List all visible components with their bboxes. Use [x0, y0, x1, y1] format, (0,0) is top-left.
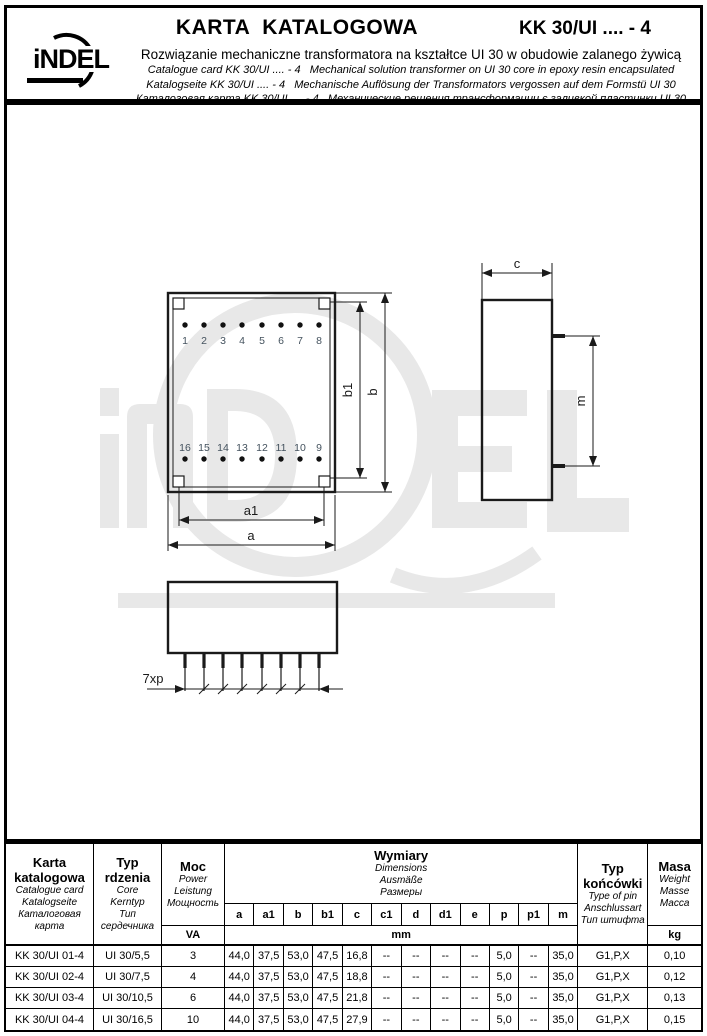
table-cell: 44,0 — [225, 967, 254, 988]
dim-letter: d1 — [439, 909, 452, 921]
table-cell: G1,P,X — [578, 967, 648, 988]
table-cell: 5,0 — [490, 988, 519, 1009]
header-line: Weight — [659, 874, 690, 886]
table-cell: G1,P,X — [578, 988, 648, 1009]
header-line: Typ — [116, 855, 138, 870]
table-cell: 44,0 — [225, 988, 254, 1009]
header-line: Typ — [602, 861, 624, 876]
table-cell: -- — [461, 967, 490, 988]
dim-subheader-m: m — [549, 904, 578, 926]
page-title-code: KK 30/UI .... - 4 — [495, 18, 675, 40]
pin-number: 8 — [316, 335, 322, 347]
header-line: Catalogue card — [16, 885, 84, 897]
header-line: Masa — [658, 859, 691, 874]
table-cell: KK 30/UI 03-4 — [6, 988, 94, 1009]
header-line: Dimensions — [375, 863, 427, 875]
table-cell: 53,0 — [284, 1009, 313, 1030]
pin-number: 15 — [198, 442, 210, 454]
header-line: Тип — [119, 909, 136, 921]
header-line: Type of pin — [588, 891, 637, 903]
technical-drawing: 1 2 3 4 5 6 7 8 16 15 14 13 12 11 10 9 b… — [7, 105, 700, 839]
header-line: Kerntyp — [110, 897, 144, 909]
table-cell: 47,5 — [313, 988, 342, 1009]
table-cell: 47,5 — [313, 946, 342, 967]
table-cell: 21,8 — [343, 988, 372, 1009]
table-cell: 6 — [162, 988, 225, 1009]
dim-label-a: a — [247, 528, 255, 543]
dim-letter: b — [295, 909, 302, 921]
table-cell: KK 30/UI 01-4 — [6, 946, 94, 967]
table-cell: -- — [431, 946, 460, 967]
pin-number: 16 — [179, 442, 191, 454]
unit-mm: mm — [225, 926, 578, 946]
header-box: iNDEL KARTA KATALOGOWA KK 30/UI .... - 4… — [4, 5, 703, 102]
table-cell: 37,5 — [254, 967, 283, 988]
table-cell: 0,13 — [648, 988, 701, 1009]
header-line: Leistung — [174, 886, 212, 898]
table-cell: 0,12 — [648, 967, 701, 988]
table-cell: 53,0 — [284, 946, 313, 967]
header-line: Masse — [660, 886, 689, 898]
table-cell: UI 30/7,5 — [94, 967, 162, 988]
table-cell: 44,0 — [225, 1009, 254, 1030]
pin-number: 12 — [256, 442, 268, 454]
table-cell: -- — [519, 967, 548, 988]
col-header-mass: Masa Weight Masse Масса — [648, 844, 701, 926]
col-header-catalogue-card: Karta katalogowa Catalogue card Katalogs… — [6, 844, 94, 946]
dim-subheader-d1: d1 — [431, 904, 460, 926]
dim-letter: m — [558, 909, 568, 921]
table-cell: 35,0 — [549, 967, 578, 988]
table-cell: UI 30/5,5 — [94, 946, 162, 967]
table-cell: 35,0 — [549, 988, 578, 1009]
table-cell: -- — [431, 1009, 460, 1030]
subtitle-block: Rozwiązanie mechaniczne transformatora n… — [125, 46, 697, 107]
table-cell: UI 30/16,5 — [94, 1009, 162, 1030]
header-line: Power — [179, 874, 207, 886]
table-cell: 0,10 — [648, 946, 701, 967]
table-cell: 44,0 — [225, 946, 254, 967]
header-line: Moc — [180, 859, 206, 874]
dim-subheader-c: c — [343, 904, 372, 926]
table-cell: -- — [519, 1009, 548, 1030]
indel-logo: iNDEL — [21, 20, 125, 96]
header-line: Размеры — [380, 887, 422, 899]
table-cell: -- — [461, 988, 490, 1009]
table-cell: 37,5 — [254, 988, 283, 1009]
dim-letter: p — [501, 909, 508, 921]
subtitle-en: Catalogue card KK 30/UI .... - 4 Mechani… — [125, 63, 697, 78]
pin-number: 3 — [220, 335, 226, 347]
dim-subheader-e: e — [461, 904, 490, 926]
table-cell: 4 — [162, 967, 225, 988]
front-view-pitch-dimension — [147, 684, 343, 694]
indel-watermark — [100, 303, 629, 608]
table-cell: -- — [372, 988, 401, 1009]
pin-number: 6 — [278, 335, 284, 347]
table-cell: 53,0 — [284, 967, 313, 988]
pin-number: 1 — [182, 335, 188, 347]
pin-number: 10 — [294, 442, 306, 454]
dim-subheader-b1: b1 — [313, 904, 342, 926]
pin-number: 7 — [297, 335, 303, 347]
table-cell: UI 30/10,5 — [94, 988, 162, 1009]
pin-number: 5 — [259, 335, 265, 347]
dim-letter: e — [472, 909, 478, 921]
header-line: Karta — [33, 855, 66, 870]
header-line: Core — [117, 885, 139, 897]
table-cell: 53,0 — [284, 988, 313, 1009]
col-header-core-type: Typ rdzenia Core Kerntyp Тип сердечника — [94, 844, 162, 946]
unit-label: VA — [186, 929, 200, 941]
table-cell: 10 — [162, 1009, 225, 1030]
pin-number: 11 — [276, 442, 287, 454]
dim-label-a1: a1 — [244, 503, 258, 518]
dim-label-b1: b1 — [340, 383, 355, 397]
table-cell: 5,0 — [490, 967, 519, 988]
table-cell: 16,8 — [343, 946, 372, 967]
drawing-area: 1 2 3 4 5 6 7 8 16 15 14 13 12 11 10 9 b… — [4, 102, 703, 842]
dim-letter: a — [236, 909, 242, 921]
table-cell: G1,P,X — [578, 946, 648, 967]
table-cell: 37,5 — [254, 1009, 283, 1030]
spec-table: Karta katalogowa Catalogue card Katalogs… — [4, 842, 703, 1032]
table-cell: 5,0 — [490, 946, 519, 967]
dim-label-m: m — [573, 396, 588, 407]
table-cell: 47,5 — [313, 967, 342, 988]
unit-kg: kg — [648, 926, 701, 946]
table-cell: -- — [461, 1009, 490, 1030]
table-cell: 37,5 — [254, 946, 283, 967]
table-cell: -- — [402, 967, 431, 988]
table-cell: -- — [402, 1009, 431, 1030]
dim-subheader-a1: a1 — [254, 904, 283, 926]
table-cell: -- — [372, 946, 401, 967]
table-cell: -- — [519, 988, 548, 1009]
header-line: карта — [35, 921, 65, 933]
table-cell: 5,0 — [490, 1009, 519, 1030]
dim-letter: c — [354, 909, 360, 921]
table-cell: -- — [402, 988, 431, 1009]
pin-number: 4 — [239, 335, 245, 347]
subtitle-pl: Rozwiązanie mechaniczne transformatora n… — [125, 46, 697, 63]
header-line: Мощность — [167, 898, 219, 910]
table-cell: KK 30/UI 04-4 — [6, 1009, 94, 1030]
unit-va: VA — [162, 926, 225, 946]
header-line: Каталоговая — [18, 909, 81, 921]
dim-letter: c1 — [380, 909, 392, 921]
dim-subheader-d: d — [402, 904, 431, 926]
subtitle-de: Katalogseite KK 30/UI .... - 4 Mechanisc… — [125, 78, 697, 93]
pin-number: 2 — [201, 335, 207, 347]
table-cell: 0,15 — [648, 1009, 701, 1030]
table-cell: 47,5 — [313, 1009, 342, 1030]
dim-letter: b1 — [321, 909, 334, 921]
header-line: Масса — [660, 898, 690, 910]
table-cell: 3 — [162, 946, 225, 967]
table-cell: KK 30/UI 02-4 — [6, 967, 94, 988]
header-line: rdzenia — [105, 870, 151, 885]
header-line: Wymiary — [374, 848, 428, 863]
catalogue-card-page: { "header": { "logo": "iNDEL", "title": … — [0, 0, 707, 1036]
table-cell: -- — [372, 1009, 401, 1030]
dim-letter: d — [412, 909, 419, 921]
table-cell: G1,P,X — [578, 1009, 648, 1030]
col-header-power: Moc Power Leistung Мощность — [162, 844, 225, 926]
dim-subheader-c1: c1 — [372, 904, 401, 926]
table-cell: -- — [461, 946, 490, 967]
dim-subheader-p: p — [490, 904, 519, 926]
pin-number: 9 — [316, 442, 322, 454]
dim-subheader-p1: p1 — [519, 904, 548, 926]
unit-label: kg — [668, 929, 681, 941]
dim-label-c: c — [514, 256, 521, 271]
pin-number: 14 — [217, 442, 229, 454]
dim-label-b: b — [365, 388, 380, 395]
dim-subheader-a: a — [225, 904, 254, 926]
table-cell: -- — [402, 946, 431, 967]
logo-text: iNDEL — [33, 44, 110, 74]
table-cell: 18,8 — [343, 967, 372, 988]
col-header-pin-type: Typ końcówki Type of pin Anschlussart Ти… — [578, 844, 648, 946]
logo-underline — [27, 78, 83, 83]
header-line: Anschlussart — [584, 903, 641, 915]
col-header-dimensions: Wymiary Dimensions Ausmäße Размеры — [225, 844, 578, 904]
header-line: Ausmäße — [380, 875, 423, 887]
pin-number: 13 — [236, 442, 248, 454]
table-cell: 27,9 — [343, 1009, 372, 1030]
table-cell: -- — [431, 988, 460, 1009]
page-title: KARTA KATALOGOWA — [147, 16, 447, 40]
table-cell: -- — [372, 967, 401, 988]
header-line: katalogowa — [14, 870, 85, 885]
header-line: końcówki — [583, 876, 642, 891]
table-cell: -- — [431, 967, 460, 988]
dim-subheader-b: b — [284, 904, 313, 926]
side-view-dimensions — [482, 263, 600, 466]
header-line: сердечника — [101, 921, 154, 933]
header-line: Тип штифта — [581, 915, 645, 927]
table-cell: 35,0 — [549, 946, 578, 967]
header-line: Katalogseite — [22, 897, 77, 909]
table-cell: 35,0 — [549, 1009, 578, 1030]
table-cell: -- — [519, 946, 548, 967]
dim-label-pitch: 7xp — [143, 671, 164, 686]
unit-label: mm — [391, 929, 411, 941]
dim-letter: p1 — [527, 909, 540, 921]
dim-letter: a1 — [263, 909, 275, 921]
